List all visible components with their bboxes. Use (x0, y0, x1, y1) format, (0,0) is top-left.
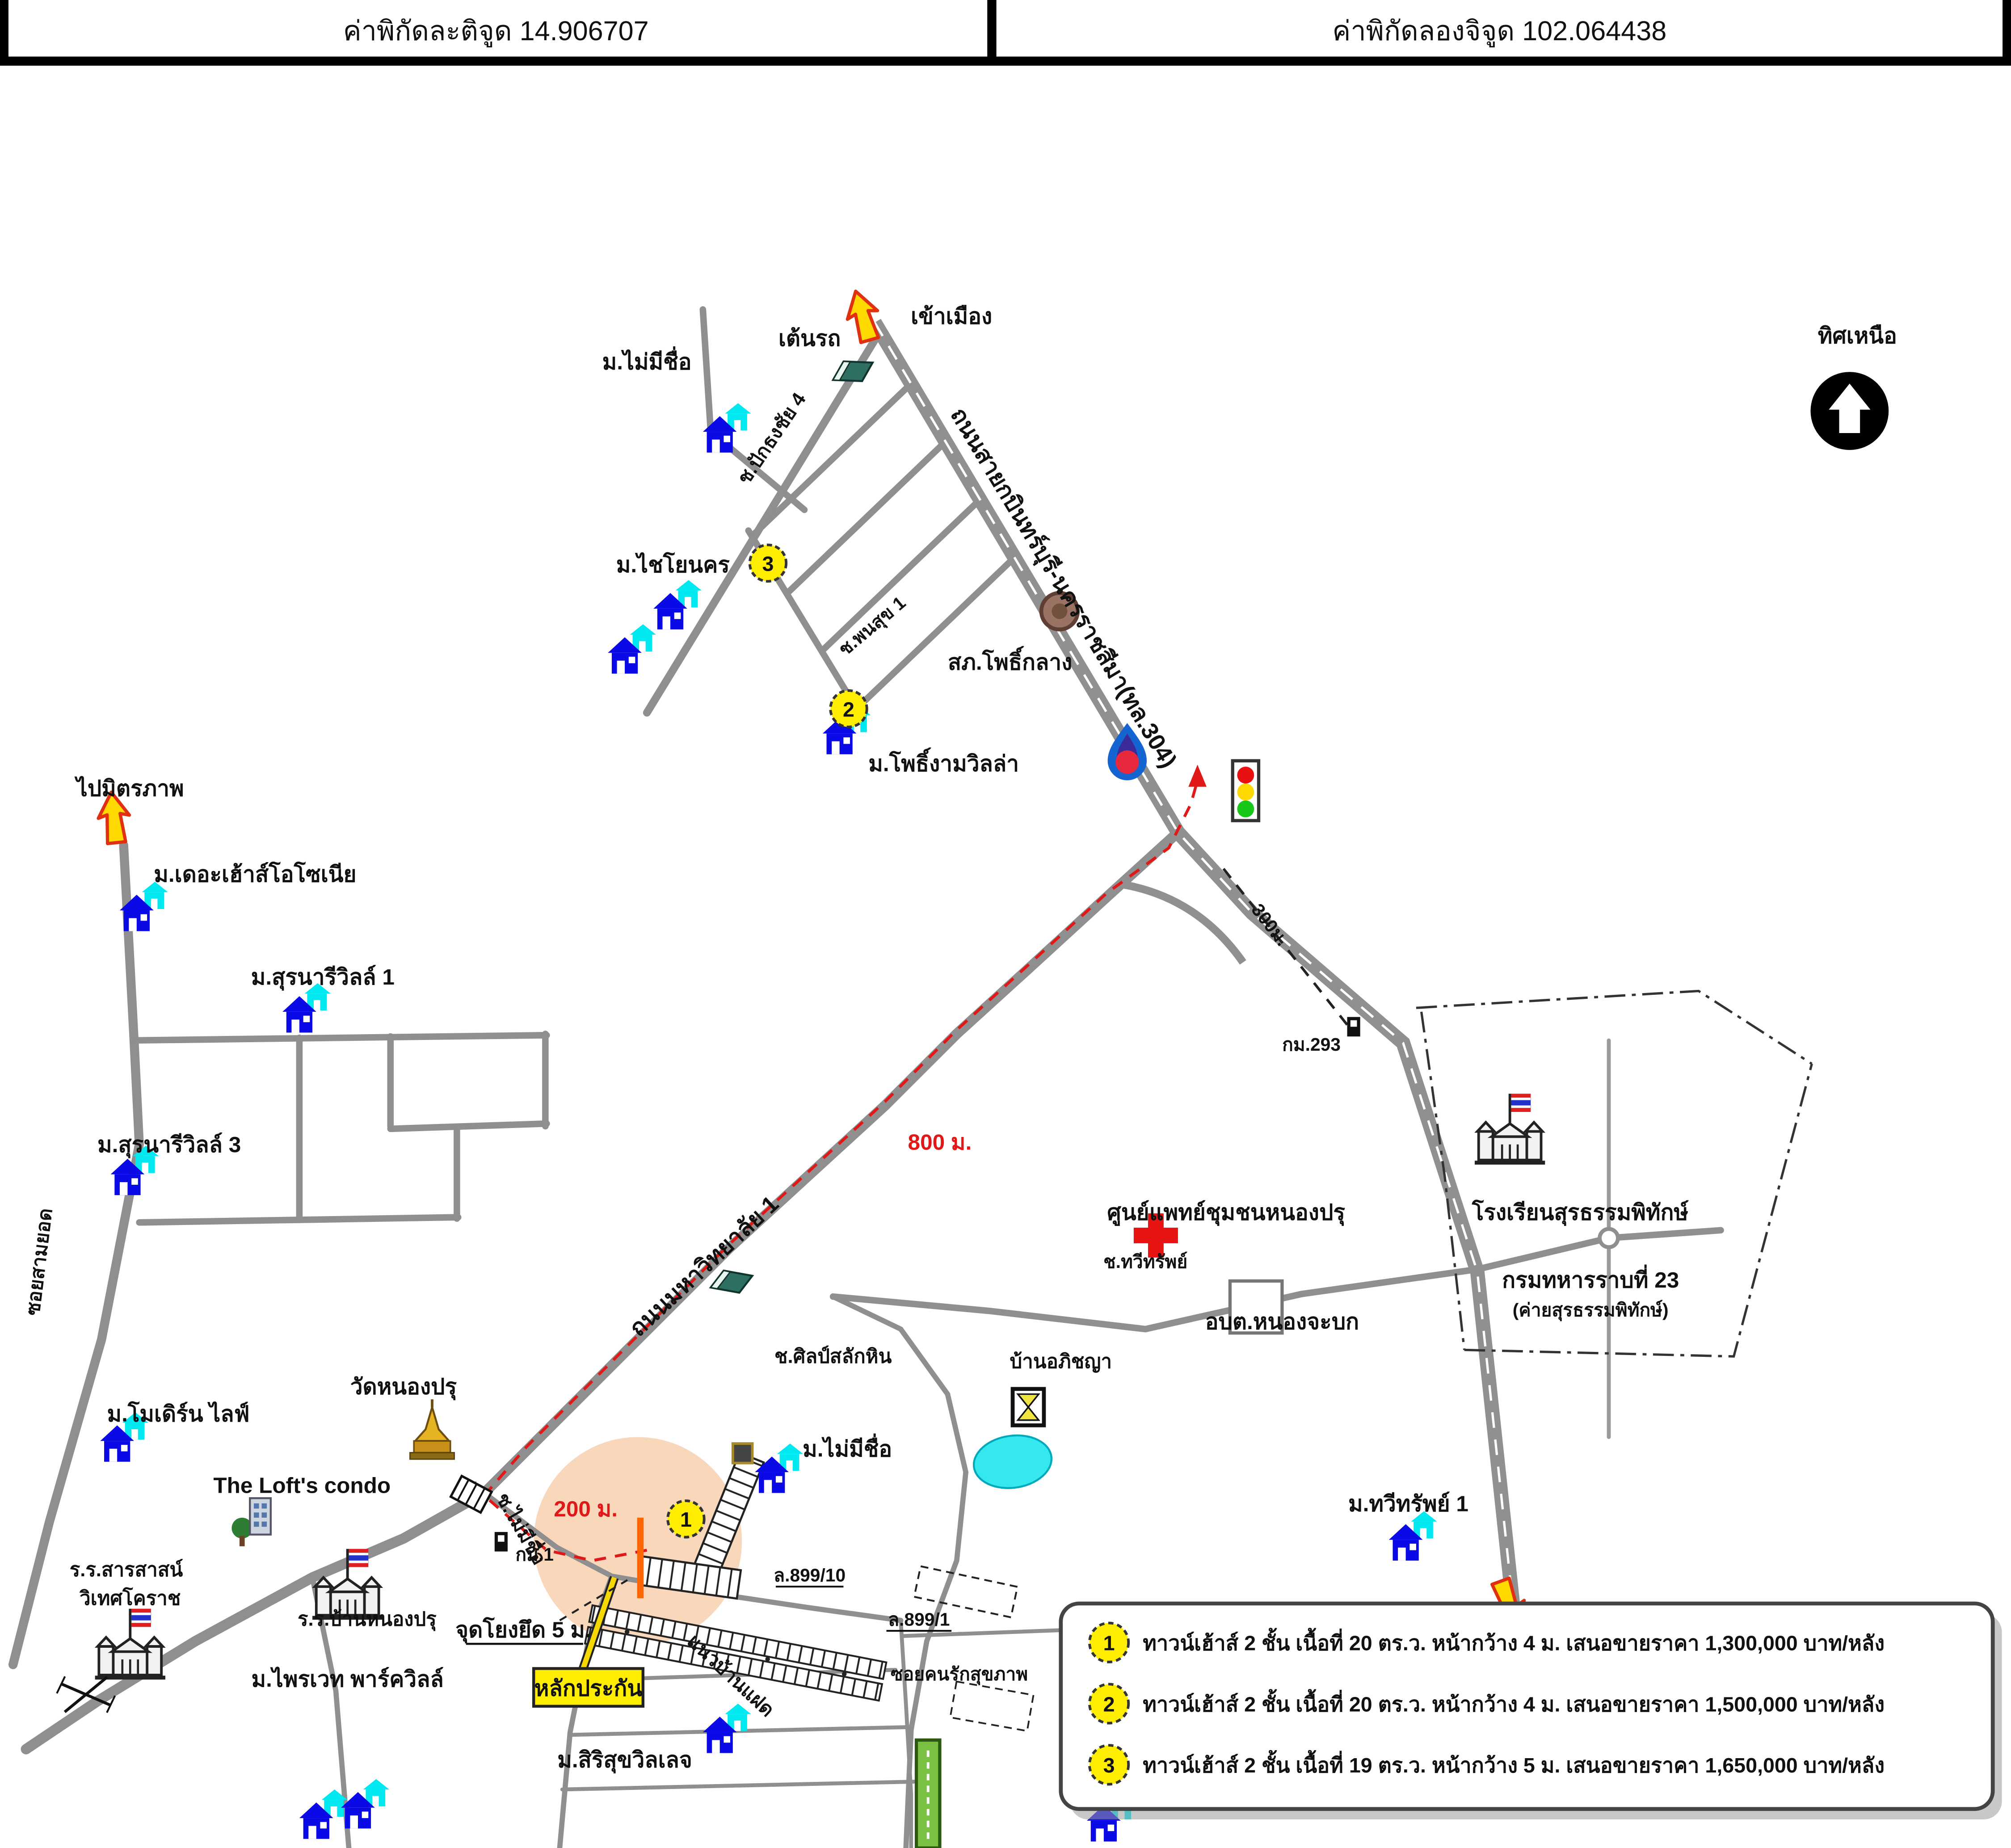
coordinate-header: ค่าพิกัดละติจูด 14.906707 ค่าพิกัดลองจิจ… (4, 0, 2007, 61)
legend-3-text: ทาวน์เฮ้าส์ 2 ชั้น เนื้อที่ 19 ตร.ว. หน้… (1143, 1750, 1885, 1777)
label-pho-ngam-villa: ม.โพธิ์งามวิลล่า (868, 747, 1019, 776)
label-sarasas-2: วิเทศโคราช (80, 1587, 181, 1609)
label-modern-life: ม.โมเดิร์น ไลฟ์ (107, 1401, 249, 1427)
marker-2-number: 2 (843, 698, 854, 721)
arrow-enter-city-icon (841, 287, 885, 344)
label-l-899-10: ล.899/10 (774, 1565, 846, 1585)
label-lofts-condo: The Loft's condo (213, 1473, 391, 1498)
row-end-building (733, 1444, 753, 1463)
legend: 1 ทาวน์เฮ้าส์ 2 ชั้น เนื้อที่ 20 ตร.ว. ห… (1061, 1604, 2002, 1819)
sarasas-school-icon (95, 1609, 165, 1678)
label-suranari-ville-3: ม.สุรนารีวิลล์ 3 (97, 1132, 241, 1158)
label-car-tent: เต้นรถ (778, 326, 841, 351)
label-baan-nong-pru-school: ร.ร.บ้านหนองปรุ (298, 1608, 437, 1631)
numbered-markers: 3 2 1 (668, 545, 867, 1537)
houses-icon (282, 983, 331, 1033)
km-293-post-icon (1347, 1017, 1360, 1037)
marker-1-number: 1 (680, 1508, 692, 1531)
green-village-sign (916, 1740, 939, 1848)
label-no-name-village-top: ม.ไม่มีชื่อ (602, 346, 692, 374)
label-thawi-sap-1: ม.ทวีทรัพย์ 1 (1348, 1491, 1468, 1516)
roundabout-junction (1600, 1229, 1618, 1247)
label-suranari-ville-1: ม.สุรนารีวิลล์ 1 (251, 964, 395, 991)
temple-icon (410, 1399, 454, 1459)
houses-icon (703, 1704, 751, 1753)
header-longitude: ค่าพิกัดลองจิจูด 102.064438 (1332, 16, 1666, 47)
houses-icon (608, 624, 656, 674)
km-1-post-icon (495, 1532, 508, 1552)
baan-apichaya-icon (1013, 1389, 1044, 1425)
traffic-light-icon (1233, 761, 1258, 821)
label-tie-point: จุดโยงยึด 5 ม. (455, 1616, 591, 1644)
label-infantry-23-sub: (ค่ายสุรธรรมพิทักษ์) (1513, 1300, 1669, 1322)
legend-1-number: 1 (1103, 1632, 1115, 1655)
label-dist-300: 300ม. (1247, 900, 1293, 950)
label-soi-khon-rak: ซอยคนรักสุขภาพ (891, 1664, 1028, 1686)
label-medical-center: ศูนย์แพทย์ชุมชนหนองปรุ (1107, 1200, 1345, 1226)
label-km-293: กม.293 (1282, 1034, 1341, 1055)
houses-icon (653, 580, 702, 630)
label-police-pho-klang: สภ.โพธิ์กลาง (948, 646, 1072, 675)
marker-3-number: 3 (762, 552, 774, 575)
label-surathampitak-school: โรงเรียนสุรธรรมพิทักษ์ (1472, 1199, 1689, 1226)
label-the-house-ozonia: ม.เดอะเฮ้าส์โอโซเนีย (154, 861, 356, 887)
baan-nong-pru-school-icon (312, 1549, 383, 1618)
label-university-road: ถนนมหาวิทยาลัย 1 (625, 1191, 784, 1342)
surathampitak-school-icon (1475, 1094, 1545, 1162)
label-infantry-23: กรมทหารราบที่ 23 (1502, 1264, 1679, 1292)
label-soi-sam-yot: ซอยสามยอด (22, 1207, 57, 1317)
label-obt-nong-chabok: อบต.หนองจะบก (1205, 1309, 1359, 1334)
condo-icon (231, 1498, 270, 1546)
houses-icon (341, 1779, 389, 1829)
warehouse-icon (711, 1271, 752, 1292)
route-arrowhead-top (1188, 765, 1207, 787)
legend-1-text: ทาวน์เฮ้าส์ 2 ชั้น เนื้อที่ 20 ตร.ว. หน้… (1143, 1628, 1885, 1655)
label-private-park-ville: ม.ไพรเวท พาร์ควิลล์ (252, 1666, 444, 1692)
marker-2: 2 (830, 690, 867, 727)
label-no-name-village-center: ม.ไม่มีชื่อ (803, 1433, 892, 1461)
label-wat-nong-pru: วัดหนองปรุ (350, 1374, 457, 1400)
legend-2-text: ทาวน์เฮ้าส์ 2 ชั้น เนื้อที่ 20 ตร.ว. หน้… (1143, 1688, 1885, 1716)
label-chaiyo-nakhon: ม.ไชโยนคร (616, 551, 730, 577)
location-map: 3 2 1 หลักประกัน เข้าเมือง เต้นรถ ม.ไม่ม… (0, 0, 2011, 1848)
label-soi-thawi-sap: ช.ทวีทรัพย์ (1103, 1251, 1187, 1272)
houses-icon (1389, 1511, 1437, 1561)
pond (970, 1431, 1055, 1493)
label-enter-city: เข้าเมือง (911, 304, 992, 329)
legend-3-number: 3 (1103, 1754, 1115, 1777)
header-latitude: ค่าพิกัดละติจูด 14.906707 (343, 16, 649, 47)
compass: ทิศเหนือ (1810, 324, 1897, 450)
label-to-mittraphap: ไปมิตรภาพ (74, 775, 184, 801)
label-soi-pak-thong-chai-4: ช.ปักธงชัย 4 (733, 388, 811, 488)
label-baan-apichaya: บ้านอภิชญา (1010, 1351, 1112, 1373)
compass-label: ทิศเหนือ (1818, 324, 1897, 348)
houses-icon (755, 1444, 803, 1493)
marker-3: 3 (750, 545, 787, 581)
car-tent-icon (831, 358, 875, 385)
label-sarasas-1: ร.ร.สารสาสน์ (70, 1559, 183, 1581)
houses-icon (299, 1789, 348, 1839)
label-dist-800: 800 ม. (908, 1130, 972, 1154)
road-highway-304 (875, 323, 1514, 1613)
collateral-callout: หลักประกัน (534, 1668, 643, 1706)
marker-1: 1 (668, 1501, 704, 1537)
header-border (4, 0, 2007, 61)
collateral-label: หลักประกัน (534, 1676, 643, 1701)
label-dist-200: 200 ม. (554, 1497, 618, 1521)
legend-2-number: 2 (1103, 1692, 1115, 1716)
label-soi-silp-salak-hin: ช.ศิลป์สลักหิน (774, 1346, 892, 1368)
label-l-899-1: ล.899/1 (888, 1609, 950, 1629)
label-sirisuk-village: ม.สิริสุขวิลเลจ (557, 1748, 692, 1774)
